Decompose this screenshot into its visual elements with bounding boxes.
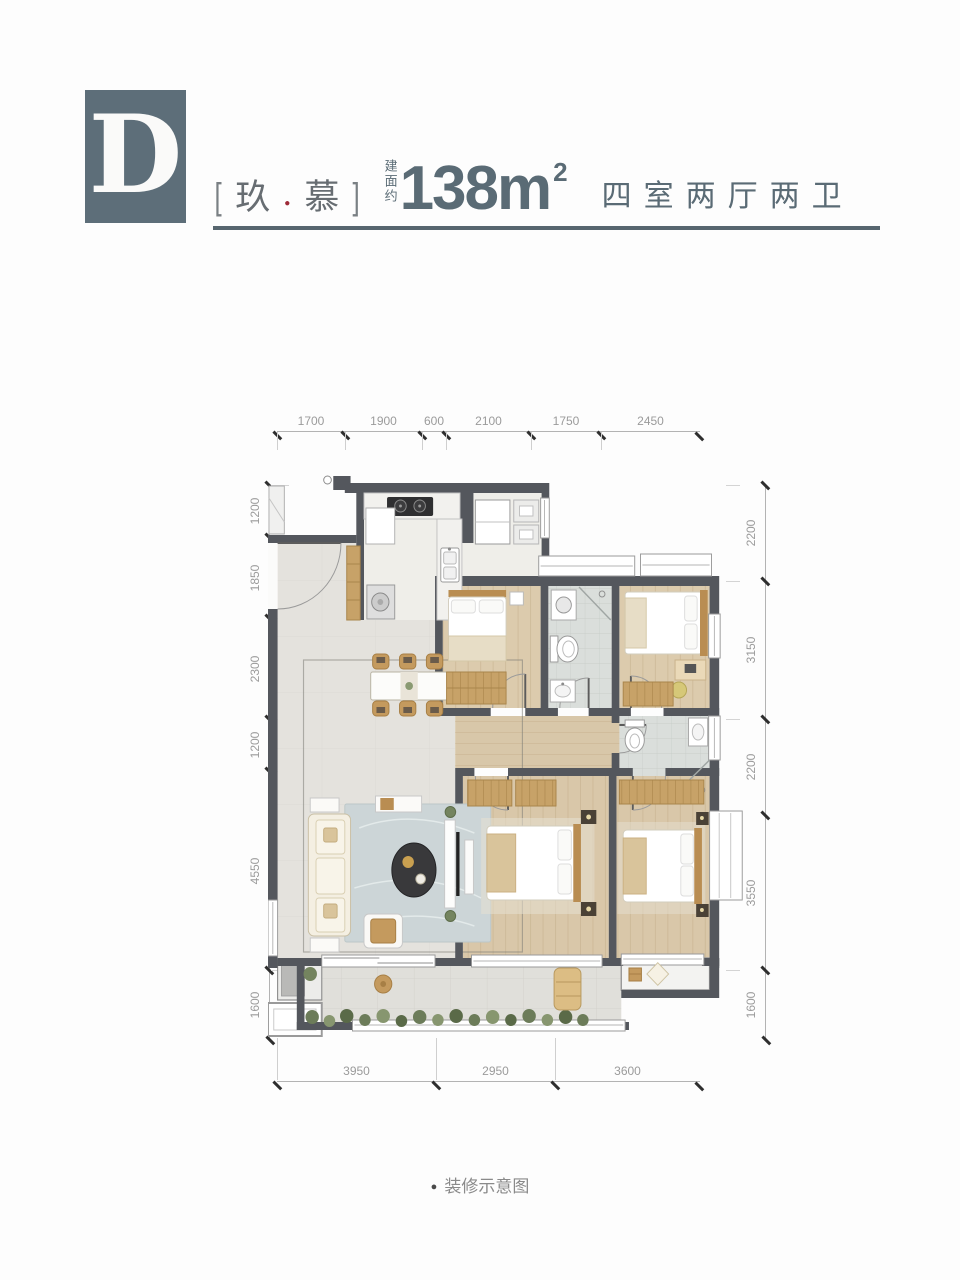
dimension-left: 1200 1850 2300 1200 4550 1600 xyxy=(244,485,270,1040)
area-prefix-label: 建面约 xyxy=(382,159,397,213)
dim-segment: 1700 xyxy=(277,408,345,432)
window xyxy=(621,954,704,965)
dining-area xyxy=(371,654,448,716)
dim-segment: 2950 xyxy=(436,1058,555,1082)
cabinet xyxy=(366,508,395,544)
dim-segment: 1200 xyxy=(244,719,270,771)
washer-icon xyxy=(367,585,395,619)
plant-icon xyxy=(445,911,456,922)
bracket-left: [ xyxy=(215,178,222,215)
dresser xyxy=(465,840,474,894)
lounge-chair xyxy=(554,968,581,1010)
unit-letter-badge: D xyxy=(85,90,186,223)
caption-bullet-icon: ● xyxy=(431,1181,438,1193)
nightstand xyxy=(510,592,523,605)
sofa xyxy=(308,814,350,936)
caption-text: 装修示意图 xyxy=(444,1177,529,1196)
window xyxy=(709,716,721,760)
dim-label: 3600 xyxy=(614,1064,641,1078)
wardrobe xyxy=(468,780,556,806)
dim-label: 1750 xyxy=(553,414,580,428)
entry xyxy=(347,546,360,620)
armchair xyxy=(364,914,402,948)
dim-tick xyxy=(695,1081,705,1091)
nightstand xyxy=(581,902,596,916)
caption: ●装修示意图 xyxy=(0,1172,960,1197)
window xyxy=(709,614,721,658)
desk xyxy=(675,660,706,680)
window xyxy=(541,498,550,538)
sink-icon xyxy=(441,547,459,582)
wardrobe xyxy=(619,780,703,804)
headboard xyxy=(448,590,506,597)
dim-segment: 600 xyxy=(422,408,446,432)
project-name: [ 玖 ● 慕 ] xyxy=(213,178,362,215)
window xyxy=(640,554,711,576)
dim-segment: 4550 xyxy=(244,771,270,970)
dim-segment: 3600 xyxy=(555,1058,700,1082)
headboard xyxy=(573,824,581,902)
coffee-table xyxy=(392,843,436,897)
dim-segment: 2300 xyxy=(244,618,270,719)
area-value: 138m xyxy=(400,164,551,215)
washer-icon xyxy=(551,590,576,620)
dim-label: 1900 xyxy=(370,414,397,428)
name-char-2: 慕 xyxy=(304,180,339,215)
basin-icon xyxy=(688,718,707,746)
toilet-icon xyxy=(550,636,578,662)
window xyxy=(539,556,635,576)
dimension-top: 1700 1900 600 2100 1750 2450 xyxy=(277,408,700,432)
floorplan-page: D [ 玖 ● 慕 ] 建面约 138m 2 四室两厅两卫 xyxy=(0,0,960,1280)
area-superscript: 2 xyxy=(553,159,567,185)
window xyxy=(268,900,278,956)
side-table xyxy=(310,798,339,812)
area-group: 建面约 138m 2 xyxy=(382,159,568,215)
sliding-door xyxy=(322,955,435,967)
dim-label: 1200 xyxy=(248,498,262,525)
unit-letter: D xyxy=(89,101,183,209)
wardrobe xyxy=(447,672,507,704)
bay-window xyxy=(710,811,743,900)
dim-label: 1600 xyxy=(248,992,262,1019)
nightstand xyxy=(696,812,708,825)
dim-segment: 2100 xyxy=(446,408,531,432)
dim-label: 2450 xyxy=(637,414,664,428)
dining-table xyxy=(371,672,448,700)
room-configuration: 四室两厅两卫 xyxy=(602,182,854,215)
dim-label: 1700 xyxy=(298,414,325,428)
side-table xyxy=(310,938,339,952)
shoe-cabinet xyxy=(347,546,360,620)
basin-icon xyxy=(550,680,575,702)
header-right: [ 玖 ● 慕 ] 建面约 138m 2 四室两厅两卫 xyxy=(213,90,880,230)
small-appliances xyxy=(514,500,539,544)
fridge-icon xyxy=(475,500,510,544)
header-divider xyxy=(213,226,880,230)
dim-segment: 1900 xyxy=(345,408,422,432)
bed xyxy=(625,592,702,654)
header-row: [ 玖 ● 慕 ] 建面约 138m 2 四室两厅两卫 xyxy=(213,90,880,217)
dim-label: 600 xyxy=(424,414,444,428)
dim-label: 3950 xyxy=(343,1064,370,1078)
dim-segment: 3950 xyxy=(277,1058,436,1082)
headboard xyxy=(700,590,708,656)
dim-segment: 1600 xyxy=(244,970,270,1040)
bedroom-4 xyxy=(617,780,708,917)
wood-box xyxy=(629,968,641,981)
bed xyxy=(448,597,506,661)
dim-tick xyxy=(695,431,705,441)
nightstand xyxy=(696,904,708,917)
name-char-1: 玖 xyxy=(235,180,270,215)
bed xyxy=(623,830,698,902)
bed xyxy=(487,826,577,900)
dim-segment: 1750 xyxy=(531,408,601,432)
headboard xyxy=(694,828,702,904)
plant-icon xyxy=(445,807,456,818)
header: D [ 玖 ● 慕 ] 建面约 138m 2 四室两厅两卫 xyxy=(85,90,880,230)
dim-segment: 1850 xyxy=(244,537,270,618)
name-separator-dot: ● xyxy=(284,199,290,209)
dim-label: 4550 xyxy=(248,857,262,884)
vent-icon xyxy=(324,476,332,484)
window xyxy=(472,955,603,967)
floor-plan xyxy=(268,468,748,1053)
toilet-icon xyxy=(625,720,644,752)
nightstand xyxy=(581,810,596,824)
dim-label: 2950 xyxy=(482,1064,509,1078)
dim-label: 1200 xyxy=(248,732,262,759)
dim-label: 2100 xyxy=(475,414,502,428)
dim-segment: 2450 xyxy=(601,408,700,432)
dim-label: 1850 xyxy=(248,564,262,591)
living-room xyxy=(308,796,490,952)
dim-label: 2300 xyxy=(248,655,262,682)
dim-segment: 1200 xyxy=(244,485,270,537)
dimension-bottom: 3950 2950 3600 xyxy=(277,1058,700,1082)
bracket-right: ] xyxy=(353,178,360,215)
console-table xyxy=(376,796,422,812)
balcony-table xyxy=(375,975,392,993)
tv-console xyxy=(445,820,460,908)
wardrobe xyxy=(623,682,673,706)
